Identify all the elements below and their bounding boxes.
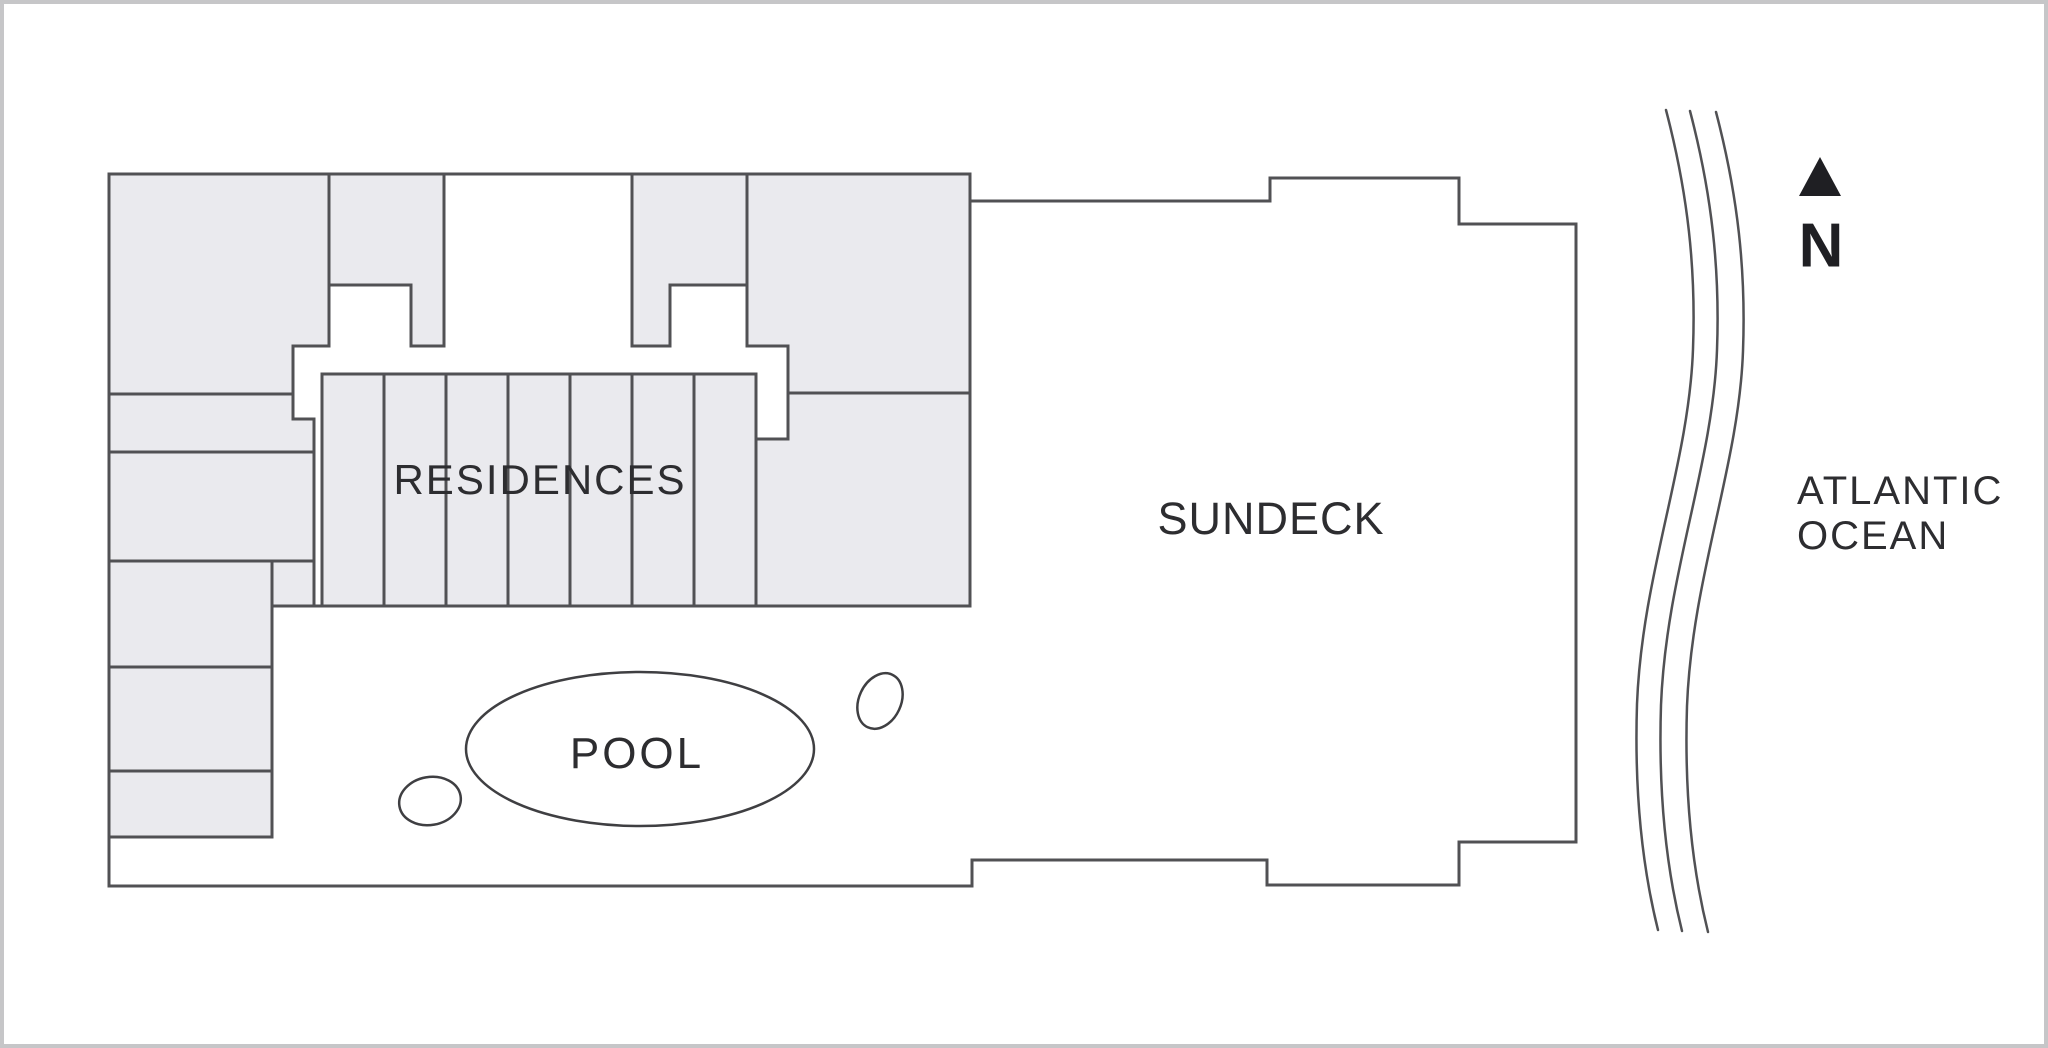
stair-tower-west bbox=[329, 174, 444, 346]
room-top-right bbox=[747, 174, 970, 393]
residences-label: RESIDENCES bbox=[393, 456, 686, 504]
spa-northeast bbox=[849, 666, 912, 736]
shoreline-wave-line bbox=[1686, 112, 1743, 932]
atlantic-ocean-line2: OCEAN bbox=[1797, 514, 2003, 559]
spa-southwest bbox=[395, 772, 464, 830]
shoreline-waves bbox=[1636, 110, 1743, 932]
pool-label: POOL bbox=[570, 729, 704, 779]
atlantic-ocean-label: ATLANTIC OCEAN bbox=[1797, 469, 2003, 559]
shoreline-wave-line bbox=[1636, 110, 1693, 930]
floor-plan-drawing bbox=[4, 4, 2048, 1048]
north-label: N bbox=[1799, 211, 1844, 282]
site-plan-page: RESIDENCES SUNDECK POOL ATLANTIC OCEAN N bbox=[0, 0, 2048, 1048]
stair-tower-east bbox=[632, 174, 747, 346]
room-mid-right bbox=[756, 393, 970, 606]
north-arrow-icon bbox=[1799, 157, 1841, 196]
room-top-left bbox=[109, 174, 329, 394]
atlantic-ocean-line1: ATLANTIC bbox=[1797, 469, 2003, 514]
sundeck-label: SUNDECK bbox=[1157, 493, 1384, 545]
